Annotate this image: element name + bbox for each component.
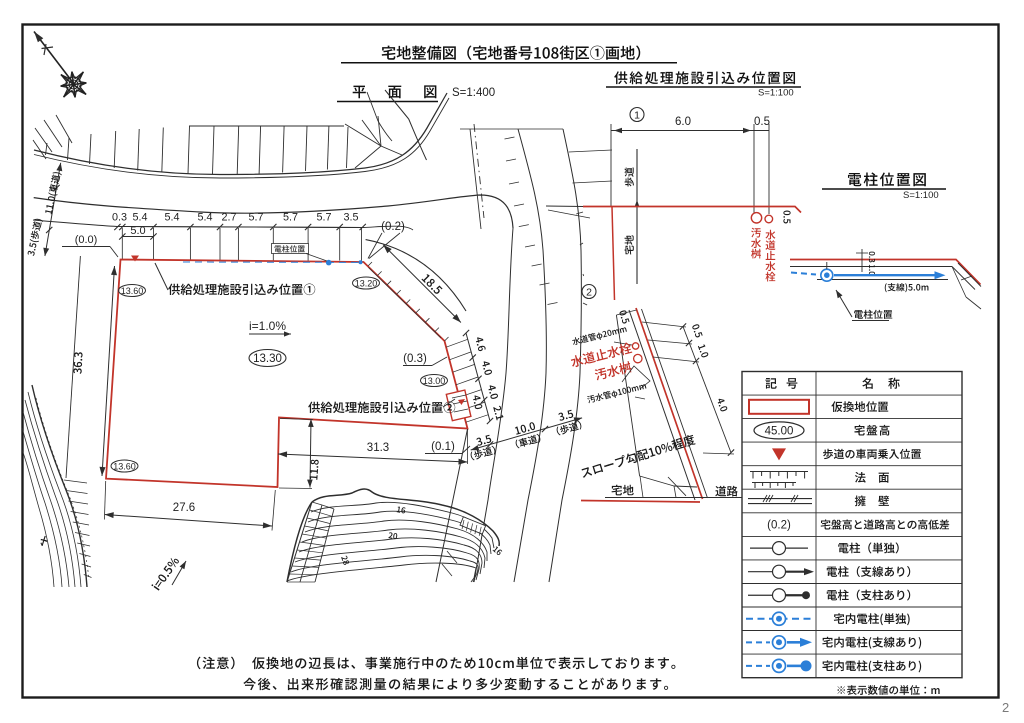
svg-text:5.4: 5.4: [164, 212, 179, 224]
svg-text:S=1:400: S=1:400: [452, 87, 495, 99]
svg-text:13.30: 13.30: [253, 353, 282, 365]
svg-text:3.5: 3.5: [343, 212, 358, 224]
svg-text:S=1:100: S=1:100: [758, 88, 794, 99]
svg-text:(0.2): (0.2): [767, 520, 791, 532]
svg-text:5.7: 5.7: [283, 212, 298, 224]
svg-text:27.6: 27.6: [173, 502, 195, 514]
svg-text:(0.0): (0.0): [75, 234, 98, 246]
svg-text:2: 2: [1002, 700, 1009, 715]
svg-text:13.60: 13.60: [121, 286, 144, 296]
svg-text:31.3: 31.3: [367, 442, 389, 454]
svg-text:13.00: 13.00: [423, 376, 446, 386]
svg-text:2.7: 2.7: [221, 212, 236, 224]
svg-text:13.20: 13.20: [355, 279, 378, 289]
svg-text:5.7: 5.7: [316, 212, 331, 224]
svg-text:(0.3): (0.3): [403, 353, 427, 365]
svg-text:5.4: 5.4: [132, 212, 147, 224]
svg-text:0.3: 0.3: [112, 212, 127, 224]
svg-text:45.00: 45.00: [765, 425, 794, 437]
svg-text:13.60: 13.60: [113, 462, 136, 472]
svg-text:1: 1: [634, 110, 640, 122]
svg-text:0.5: 0.5: [754, 116, 770, 128]
svg-text:5.4: 5.4: [197, 212, 212, 224]
svg-text:5.7: 5.7: [248, 212, 263, 224]
svg-text:6.0: 6.0: [675, 116, 691, 128]
svg-text:2: 2: [586, 287, 592, 299]
svg-text:(0.1): (0.1): [431, 441, 455, 453]
svg-text:(0.2): (0.2): [381, 221, 405, 233]
svg-text:i=1.0%: i=1.0%: [249, 319, 286, 333]
svg-text:5.0: 5.0: [130, 225, 145, 237]
svg-text:S=1:100: S=1:100: [903, 190, 939, 201]
